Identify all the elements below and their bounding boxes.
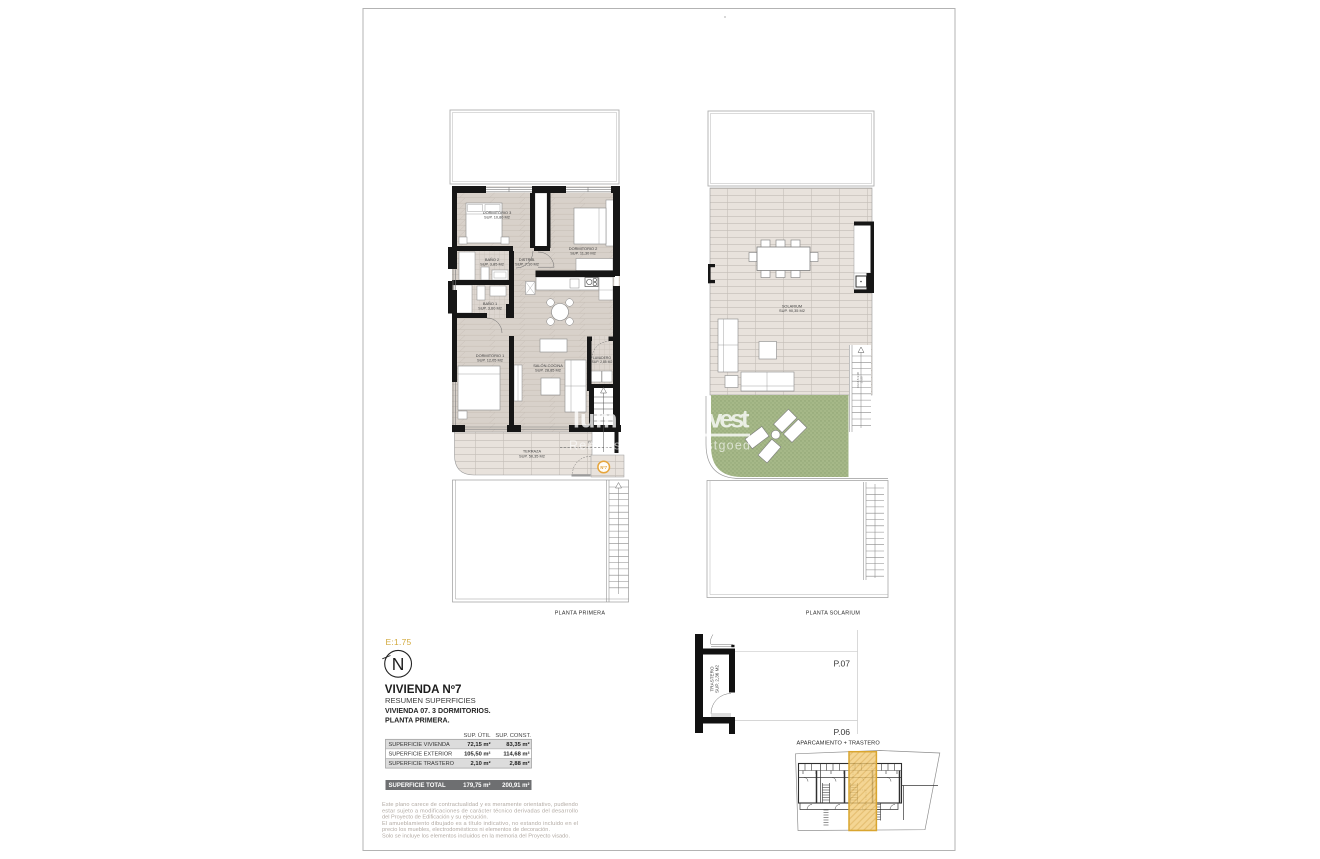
svg-text:SUPERFICIE VIVIENDA: SUPERFICIE VIVIENDA (389, 742, 451, 748)
svg-text:SUP. ÚTIL: SUP. ÚTIL (464, 732, 492, 739)
svg-text:SUPERFICIE TOTAL: SUPERFICIE TOTAL (389, 783, 446, 789)
svg-text:del Proyecto de Edificación y: del Proyecto de Edificación y su ejecuci… (382, 815, 488, 821)
svg-text:PLANTA PRIMERA: PLANTA PRIMERA (555, 611, 606, 617)
svg-text:114,68 m²: 114,68 m² (503, 751, 529, 758)
svg-text:SUPERFICIE TRASTERO: SUPERFICIE TRASTERO (389, 761, 455, 767)
svg-text:105,50 m²: 105,50 m² (464, 751, 490, 758)
svg-text:2,88 m²: 2,88 m² (510, 760, 530, 767)
svg-text:SUP. 11,30 M2: SUP. 11,30 M2 (570, 251, 596, 256)
svg-text:E:1.75: E:1.75 (386, 637, 412, 647)
svg-text:Solo se incluye los elementos: Solo se incluye los elementos incluidos … (382, 834, 570, 840)
svg-text:SUP. 90,35 M2: SUP. 90,35 M2 (779, 308, 805, 313)
svg-text:SUP. 3,60 M2: SUP. 3,60 M2 (478, 306, 502, 311)
svg-text:VIVIENDA 07. 3 DORMITORIOS.: VIVIENDA 07. 3 DORMITORIOS. (385, 707, 491, 715)
svg-text:El amueblamiento dibujado es a: El amueblamiento dibujado es a título in… (382, 821, 578, 827)
svg-text:PLANTA PRIMERA.: PLANTA PRIMERA. (385, 717, 450, 725)
svg-text:APARCAMIENTO + TRASTERO: APARCAMIENTO + TRASTERO (797, 741, 881, 747)
svg-text:VIVIENDA Nº7: VIVIENDA Nº7 (385, 683, 462, 696)
svg-text:PLANTA SOLARIUM: PLANTA SOLARIUM (806, 611, 861, 617)
svg-text:SUP. 7,10 M2: SUP. 7,10 M2 (515, 262, 539, 267)
svg-text:precio los muebles, electrodom: precio los muebles, electrodomésticos ni… (382, 827, 550, 833)
svg-text:SUP. 12,05 M2: SUP. 12,05 M2 (477, 358, 503, 363)
svg-text:vest: vest (709, 405, 751, 433)
svg-text:SUP. 2,36 M2: SUP. 2,36 M2 (715, 665, 720, 693)
svg-text:SUP. 3,85 M2: SUP. 3,85 M2 (480, 262, 504, 267)
svg-text:SUP. CONST.: SUP. CONST. (495, 733, 531, 739)
svg-text:P.07: P.07 (834, 658, 851, 668)
svg-text:16x18,5=2,96: 16x18,5=2,96 (856, 372, 860, 388)
svg-text:17x28: 17x28 (860, 376, 864, 384)
svg-text:SUP. 28,85 M2: SUP. 28,85 M2 (535, 368, 561, 373)
svg-text:Este plano carece de contractu: Este plano carece de contractualidad y e… (382, 802, 578, 808)
svg-text:estar sujeto a modificaciones: estar sujeto a modificaciones de carácte… (382, 808, 578, 814)
svg-text:2,10 m²: 2,10 m² (471, 760, 491, 767)
svg-text:RESUMEN SUPERFICIES: RESUMEN SUPERFICIES (385, 696, 476, 705)
svg-text:Real Estate | Vastgoed: Real Estate | Vastgoed (569, 439, 750, 453)
svg-text:SUPERFICIE EXTERIOR: SUPERFICIE EXTERIOR (389, 752, 453, 758)
svg-text:P.06: P.06 (834, 727, 851, 737)
svg-text:Nº7: Nº7 (600, 465, 607, 470)
svg-text:SUP. 10,80 M2: SUP. 10,80 M2 (484, 215, 510, 220)
svg-text:83,35 m²: 83,35 m² (506, 741, 529, 748)
svg-text:179,75 m²: 179,75 m² (463, 782, 490, 789)
svg-text:SUP. 2,85 M2: SUP. 2,85 M2 (592, 360, 613, 364)
svg-text:72,15 m²: 72,15 m² (467, 741, 490, 748)
svg-text:N: N (392, 654, 405, 674)
svg-text:200,91 m²: 200,91 m² (502, 782, 529, 789)
svg-text:lum: lum (573, 405, 617, 433)
svg-text:SUP. 50,35 M2: SUP. 50,35 M2 (519, 453, 545, 458)
